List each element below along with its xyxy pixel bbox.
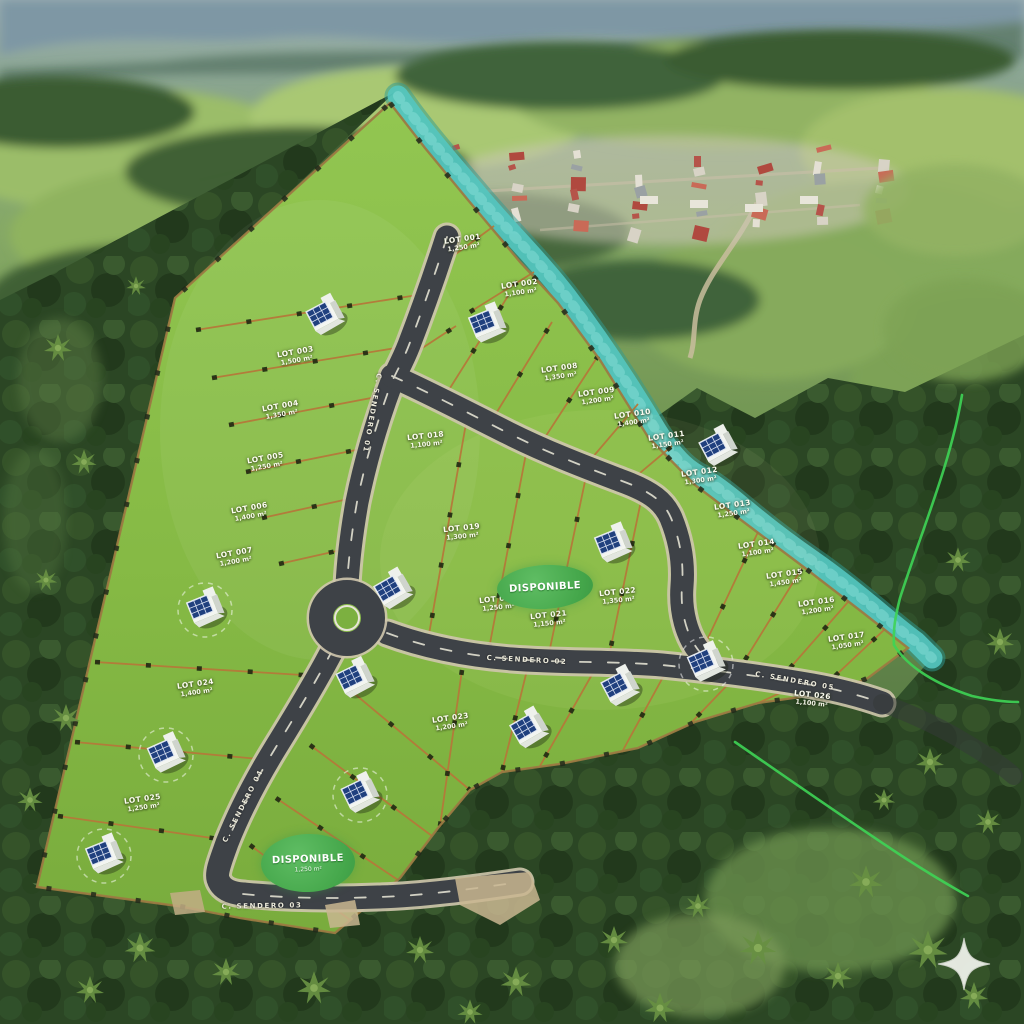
- aerial-lot-map: LOT 001 1,250 m² LOT 002 1,100 m² LOT 00…: [0, 0, 1024, 1024]
- town-building: [573, 150, 581, 159]
- town-warehouse: [800, 196, 818, 204]
- town-warehouse: [640, 196, 658, 204]
- town-warehouse: [690, 200, 708, 208]
- town-building: [512, 195, 527, 201]
- town-building: [571, 177, 586, 191]
- map-canvas: [0, 0, 1024, 1024]
- town-building: [509, 152, 525, 161]
- roundabout: [308, 579, 386, 657]
- star-logo-icon: [932, 932, 996, 996]
- town-building: [753, 219, 760, 227]
- town-building: [694, 156, 701, 167]
- town-warehouse: [745, 204, 763, 212]
- town-building: [755, 180, 762, 186]
- town-building: [573, 220, 589, 232]
- town-building: [814, 173, 826, 185]
- town-building: [632, 213, 639, 219]
- town-building: [817, 217, 828, 225]
